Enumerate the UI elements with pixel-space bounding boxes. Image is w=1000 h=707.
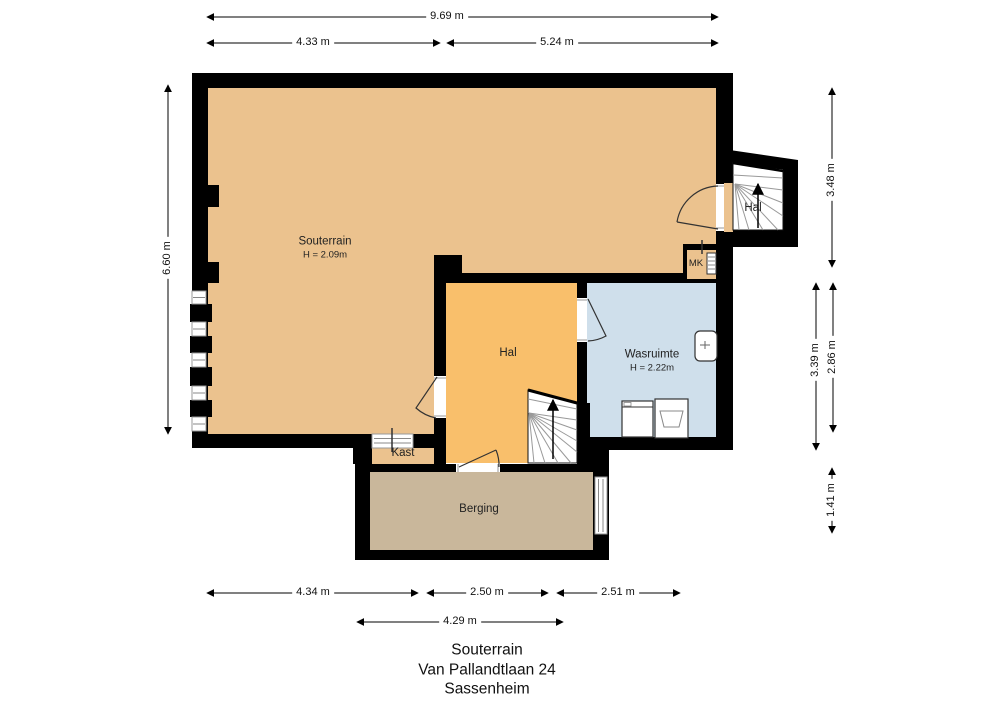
dim-left-total: 6.60 m — [161, 237, 175, 279]
room-height: H = 2.09m — [298, 250, 351, 262]
room-height: H = 2.22m — [625, 363, 680, 375]
dim-bottom-mid: 2.50 m — [466, 586, 508, 600]
dim-right-mid-inner: 3.39 m — [809, 339, 823, 381]
room-label-souterrain: Souterrain H = 2.09m — [298, 234, 351, 261]
dim-bottom-inner: 4.29 m — [439, 615, 481, 629]
dim-top-right: 5.24 m — [536, 36, 578, 50]
stair-landing — [724, 183, 733, 232]
room-fills — [207, 87, 716, 550]
room-label-hal-boven: Hal — [744, 201, 761, 215]
washing-machine — [622, 401, 653, 437]
floorplan-canvas: 9.69 m 4.33 m 5.24 m 6.60 m 3.48 m 3.39 … — [0, 0, 1000, 707]
room-souterrain-lower — [207, 273, 434, 434]
room-label-mk: MK — [689, 258, 703, 270]
title-city: Sassenheim — [418, 680, 556, 700]
sink — [695, 331, 717, 361]
room-label-wasruimte: Wasruimte H = 2.22m — [625, 347, 680, 374]
dim-right-top: 3.48 m — [825, 159, 839, 201]
dim-bottom-right: 2.51 m — [597, 586, 639, 600]
title-floor: Souterrain — [418, 640, 556, 660]
staircase-lower — [528, 390, 577, 463]
laundry-basket — [655, 399, 688, 438]
meter-cabinet-unit — [707, 253, 716, 274]
dim-right-bottom: 1.41 m — [825, 479, 839, 521]
title-address: Van Pallandtlaan 24 — [418, 660, 556, 680]
berging-window — [595, 477, 607, 534]
title-block: Souterrain Van Pallandtlaan 24 Sassenhei… — [418, 640, 556, 699]
room-souterrain — [207, 87, 716, 273]
dim-top-total: 9.69 m — [426, 10, 468, 24]
room-name: Wasruimte — [625, 347, 680, 361]
staircase-upper — [733, 163, 783, 230]
dim-bottom-left: 4.34 m — [292, 586, 334, 600]
room-label-kast: Kast — [391, 446, 414, 460]
room-label-hal: Hal — [499, 346, 516, 360]
dim-top-left: 4.33 m — [292, 36, 334, 50]
dim-right-mid-outer: 2.86 m — [826, 336, 840, 378]
room-label-berging: Berging — [459, 502, 499, 516]
room-name: Souterrain — [298, 234, 351, 248]
